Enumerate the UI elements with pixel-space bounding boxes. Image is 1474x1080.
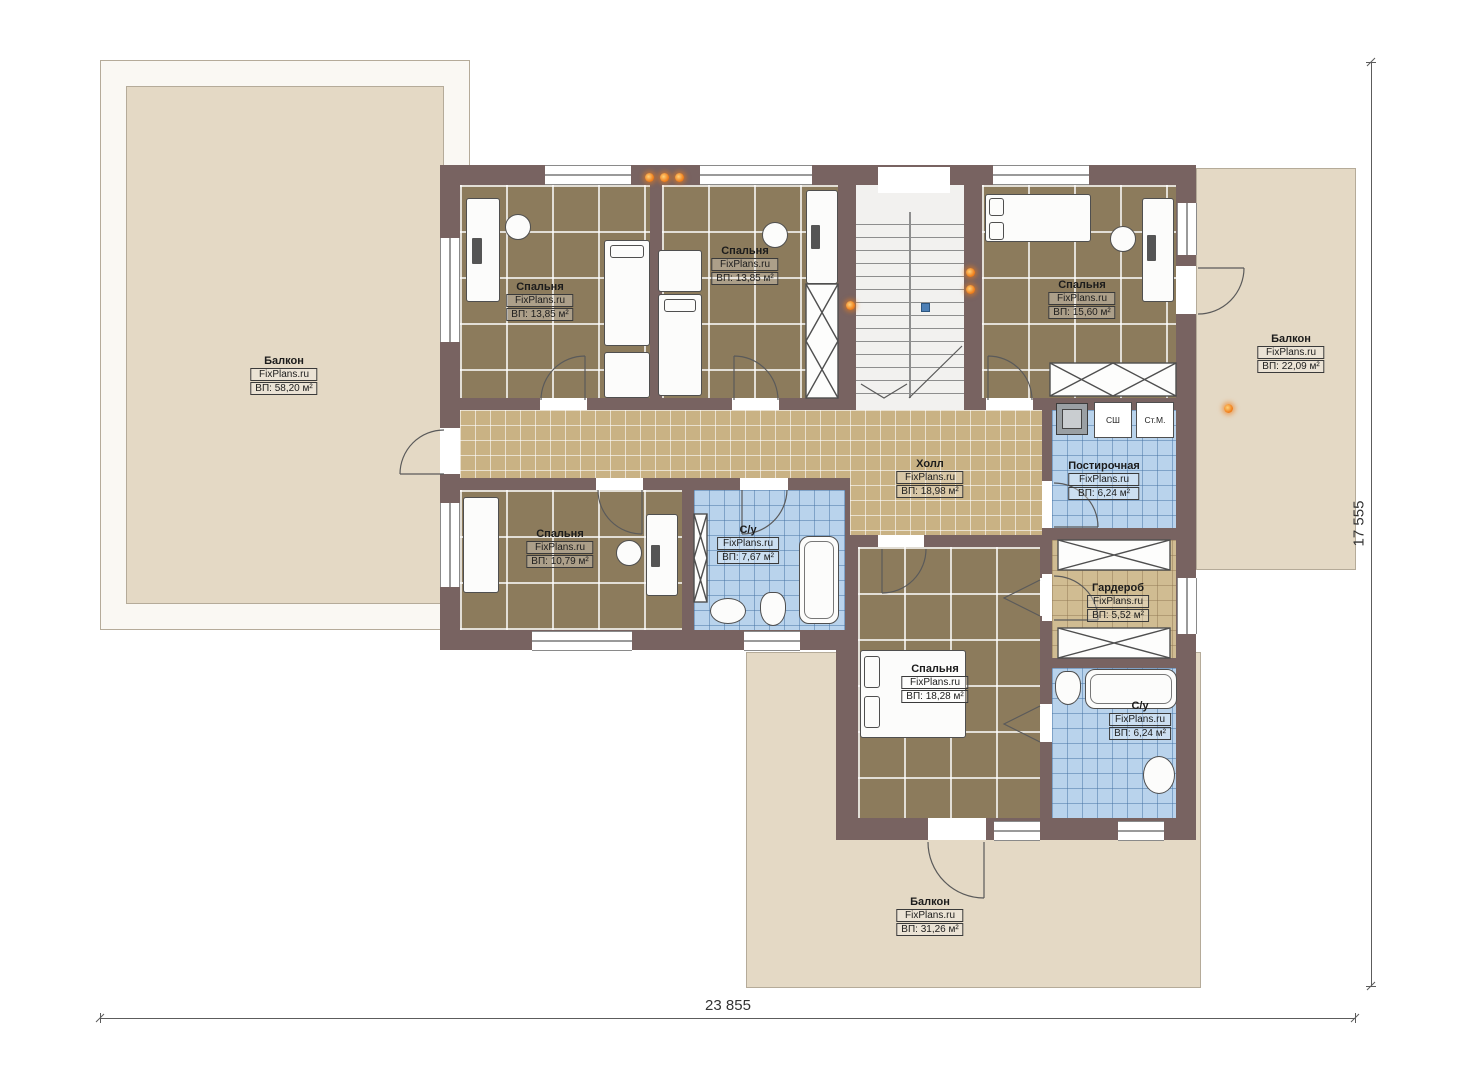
monitor [1147, 235, 1156, 261]
room-name: Постирочная [1068, 460, 1139, 472]
sofa [463, 497, 499, 593]
pillow [864, 696, 880, 728]
monitor [811, 225, 820, 249]
room-area: ВП: 10,79 м² [526, 555, 593, 568]
dimension-line-width [100, 1018, 1355, 1019]
dimension-height-label: 17 555 [1350, 501, 1367, 547]
cabinet [604, 352, 650, 398]
cabinet [658, 250, 702, 292]
room-label-bathroom-bottom-right: С/у FixPlans.ru ВП: 6,24 м² [1109, 700, 1171, 740]
drying-cabinet: СШ [1094, 402, 1132, 438]
door-gap-bedroom-tr [986, 398, 1033, 410]
room-brand: FixPlans.ru [526, 541, 593, 554]
room-area: ВП: 15,60 м² [1048, 306, 1115, 319]
door-gap-bedroom-tc [732, 398, 779, 410]
room-label-bedroom-top-right: Спальня FixPlans.ru ВП: 15,60 м² [1048, 279, 1115, 319]
washing-machine-label: Ст.М. [1145, 415, 1166, 425]
room-name: Спальня [526, 528, 593, 540]
dimension-line-height [1371, 62, 1372, 986]
light-dot [645, 173, 654, 182]
room-name: С/у [717, 524, 779, 536]
sink [710, 598, 746, 624]
door-gap-laundry [1042, 481, 1052, 528]
stairwell-notch [878, 167, 950, 193]
room-label-balcony-bottom: Балкон FixPlans.ru ВП: 31,26 м² [896, 896, 963, 936]
room-brand: FixPlans.ru [1087, 595, 1149, 608]
dim-tick [1366, 986, 1376, 987]
light-dot [660, 173, 669, 182]
chair [1110, 226, 1136, 252]
room-label-hall: Холл FixPlans.ru ВП: 18,98 м² [896, 458, 963, 498]
door-gap-bedroom-bl [596, 478, 643, 490]
door-gap-bedroom-tl [540, 398, 587, 410]
pillow [864, 656, 880, 688]
room-name: Балкон [250, 355, 317, 367]
chair [505, 214, 531, 240]
room-brand: FixPlans.ru [1048, 292, 1115, 305]
window [994, 821, 1040, 841]
room-name: Спальня [711, 245, 778, 257]
room-brand: FixPlans.ru [717, 537, 779, 550]
dimension-width-label: 23 855 [705, 997, 751, 1014]
monitor [651, 545, 660, 567]
window [993, 165, 1089, 185]
window [532, 631, 632, 651]
door-gap-balcony-bottom [928, 818, 986, 840]
room-area: ВП: 5,52 м² [1087, 609, 1149, 622]
dim-tick [100, 1013, 101, 1023]
monitor [472, 238, 482, 264]
room-name: Гардероб [1087, 582, 1149, 594]
room-brand: FixPlans.ru [250, 368, 317, 381]
window [700, 165, 812, 185]
dim-tick [1355, 1013, 1356, 1023]
room-label-balcony-left: Балкон FixPlans.ru ВП: 58,20 м² [250, 355, 317, 395]
room-brand: FixPlans.ru [901, 676, 968, 689]
balcony-left [126, 86, 444, 604]
room-name: Спальня [506, 281, 573, 293]
door-gap-bedroom-bottom [878, 535, 924, 547]
chair [616, 540, 642, 566]
room-label-wardrobe: Гардероб FixPlans.ru ВП: 5,52 м² [1087, 582, 1149, 622]
room-brand: FixPlans.ru [506, 294, 573, 307]
room-label-bedroom-top-left: Спальня FixPlans.ru ВП: 13,85 м² [506, 281, 573, 321]
room-brand: FixPlans.ru [1068, 473, 1139, 486]
room-name: С/у [1109, 700, 1171, 712]
room-label-balcony-right: Балкон FixPlans.ru ВП: 22,09 м² [1257, 333, 1324, 373]
window [1177, 203, 1197, 255]
room-brand: FixPlans.ru [1109, 713, 1171, 726]
room-label-bedroom-bottom-left: Спальня FixPlans.ru ВП: 10,79 м² [526, 528, 593, 568]
room-area: ВП: 58,20 м² [250, 382, 317, 395]
room-area: ВП: 6,24 м² [1068, 487, 1139, 500]
room-area: ВП: 18,28 м² [901, 690, 968, 703]
room-area: ВП: 6,24 м² [1109, 727, 1171, 740]
washing-machine: Ст.М. [1136, 402, 1174, 438]
door-gap-bathroom-center [740, 478, 788, 490]
window [1118, 821, 1164, 841]
room-label-bedroom-top-center: Спальня FixPlans.ru ВП: 13,85 м² [711, 245, 778, 285]
room-brand: FixPlans.ru [711, 258, 778, 271]
room-area: ВП: 7,67 м² [717, 551, 779, 564]
room-area: ВП: 18,98 м² [896, 485, 963, 498]
room-brand: FixPlans.ru [896, 909, 963, 922]
pillow [610, 245, 644, 258]
room-name: Балкон [896, 896, 963, 908]
light-dot [1224, 404, 1233, 413]
room-label-bedroom-bottom: Спальня FixPlans.ru ВП: 18,28 м² [901, 663, 968, 703]
window [744, 631, 800, 651]
room-area: ВП: 13,85 м² [506, 308, 573, 321]
pillow [989, 222, 1004, 240]
toilet [760, 592, 786, 626]
room-area: ВП: 31,26 м² [896, 923, 963, 936]
room-name: Спальня [1048, 279, 1115, 291]
door-gap-balcony-right [1176, 266, 1196, 314]
room-area: ВП: 22,09 м² [1257, 360, 1324, 373]
room-name: Балкон [1257, 333, 1324, 345]
window [440, 238, 460, 342]
bathtub [799, 536, 839, 624]
room-label-laundry: Постирочная FixPlans.ru ВП: 6,24 м² [1068, 460, 1139, 500]
window [440, 503, 460, 587]
drying-cabinet-label: СШ [1106, 415, 1120, 425]
room-name: Холл [896, 458, 963, 470]
light-dot [675, 173, 684, 182]
room-label-bathroom-center: С/у FixPlans.ru ВП: 7,67 м² [717, 524, 779, 564]
room-name: Спальня [901, 663, 968, 675]
door-gap-closet-1 [1040, 578, 1052, 616]
pillow [989, 198, 1004, 216]
pillow [664, 299, 696, 312]
light-dot [846, 301, 855, 310]
light-dot [966, 285, 975, 294]
dim-tick [1366, 62, 1376, 63]
stair-stringer [909, 212, 911, 398]
sink [1143, 756, 1175, 794]
laundry-sink [1056, 403, 1088, 435]
stair-marker [921, 303, 930, 312]
room-brand: FixPlans.ru [1257, 346, 1324, 359]
window [545, 165, 631, 185]
floor-plan: СШ Ст.М. [0, 0, 1474, 1080]
door-gap-closet-2 [1040, 704, 1052, 742]
light-dot [966, 268, 975, 277]
window [1177, 578, 1197, 634]
room-brand: FixPlans.ru [896, 471, 963, 484]
floor-corridor [460, 410, 850, 478]
toilet [1055, 671, 1081, 705]
door-gap-balcony-left [440, 428, 460, 474]
room-area: ВП: 13,85 м² [711, 272, 778, 285]
